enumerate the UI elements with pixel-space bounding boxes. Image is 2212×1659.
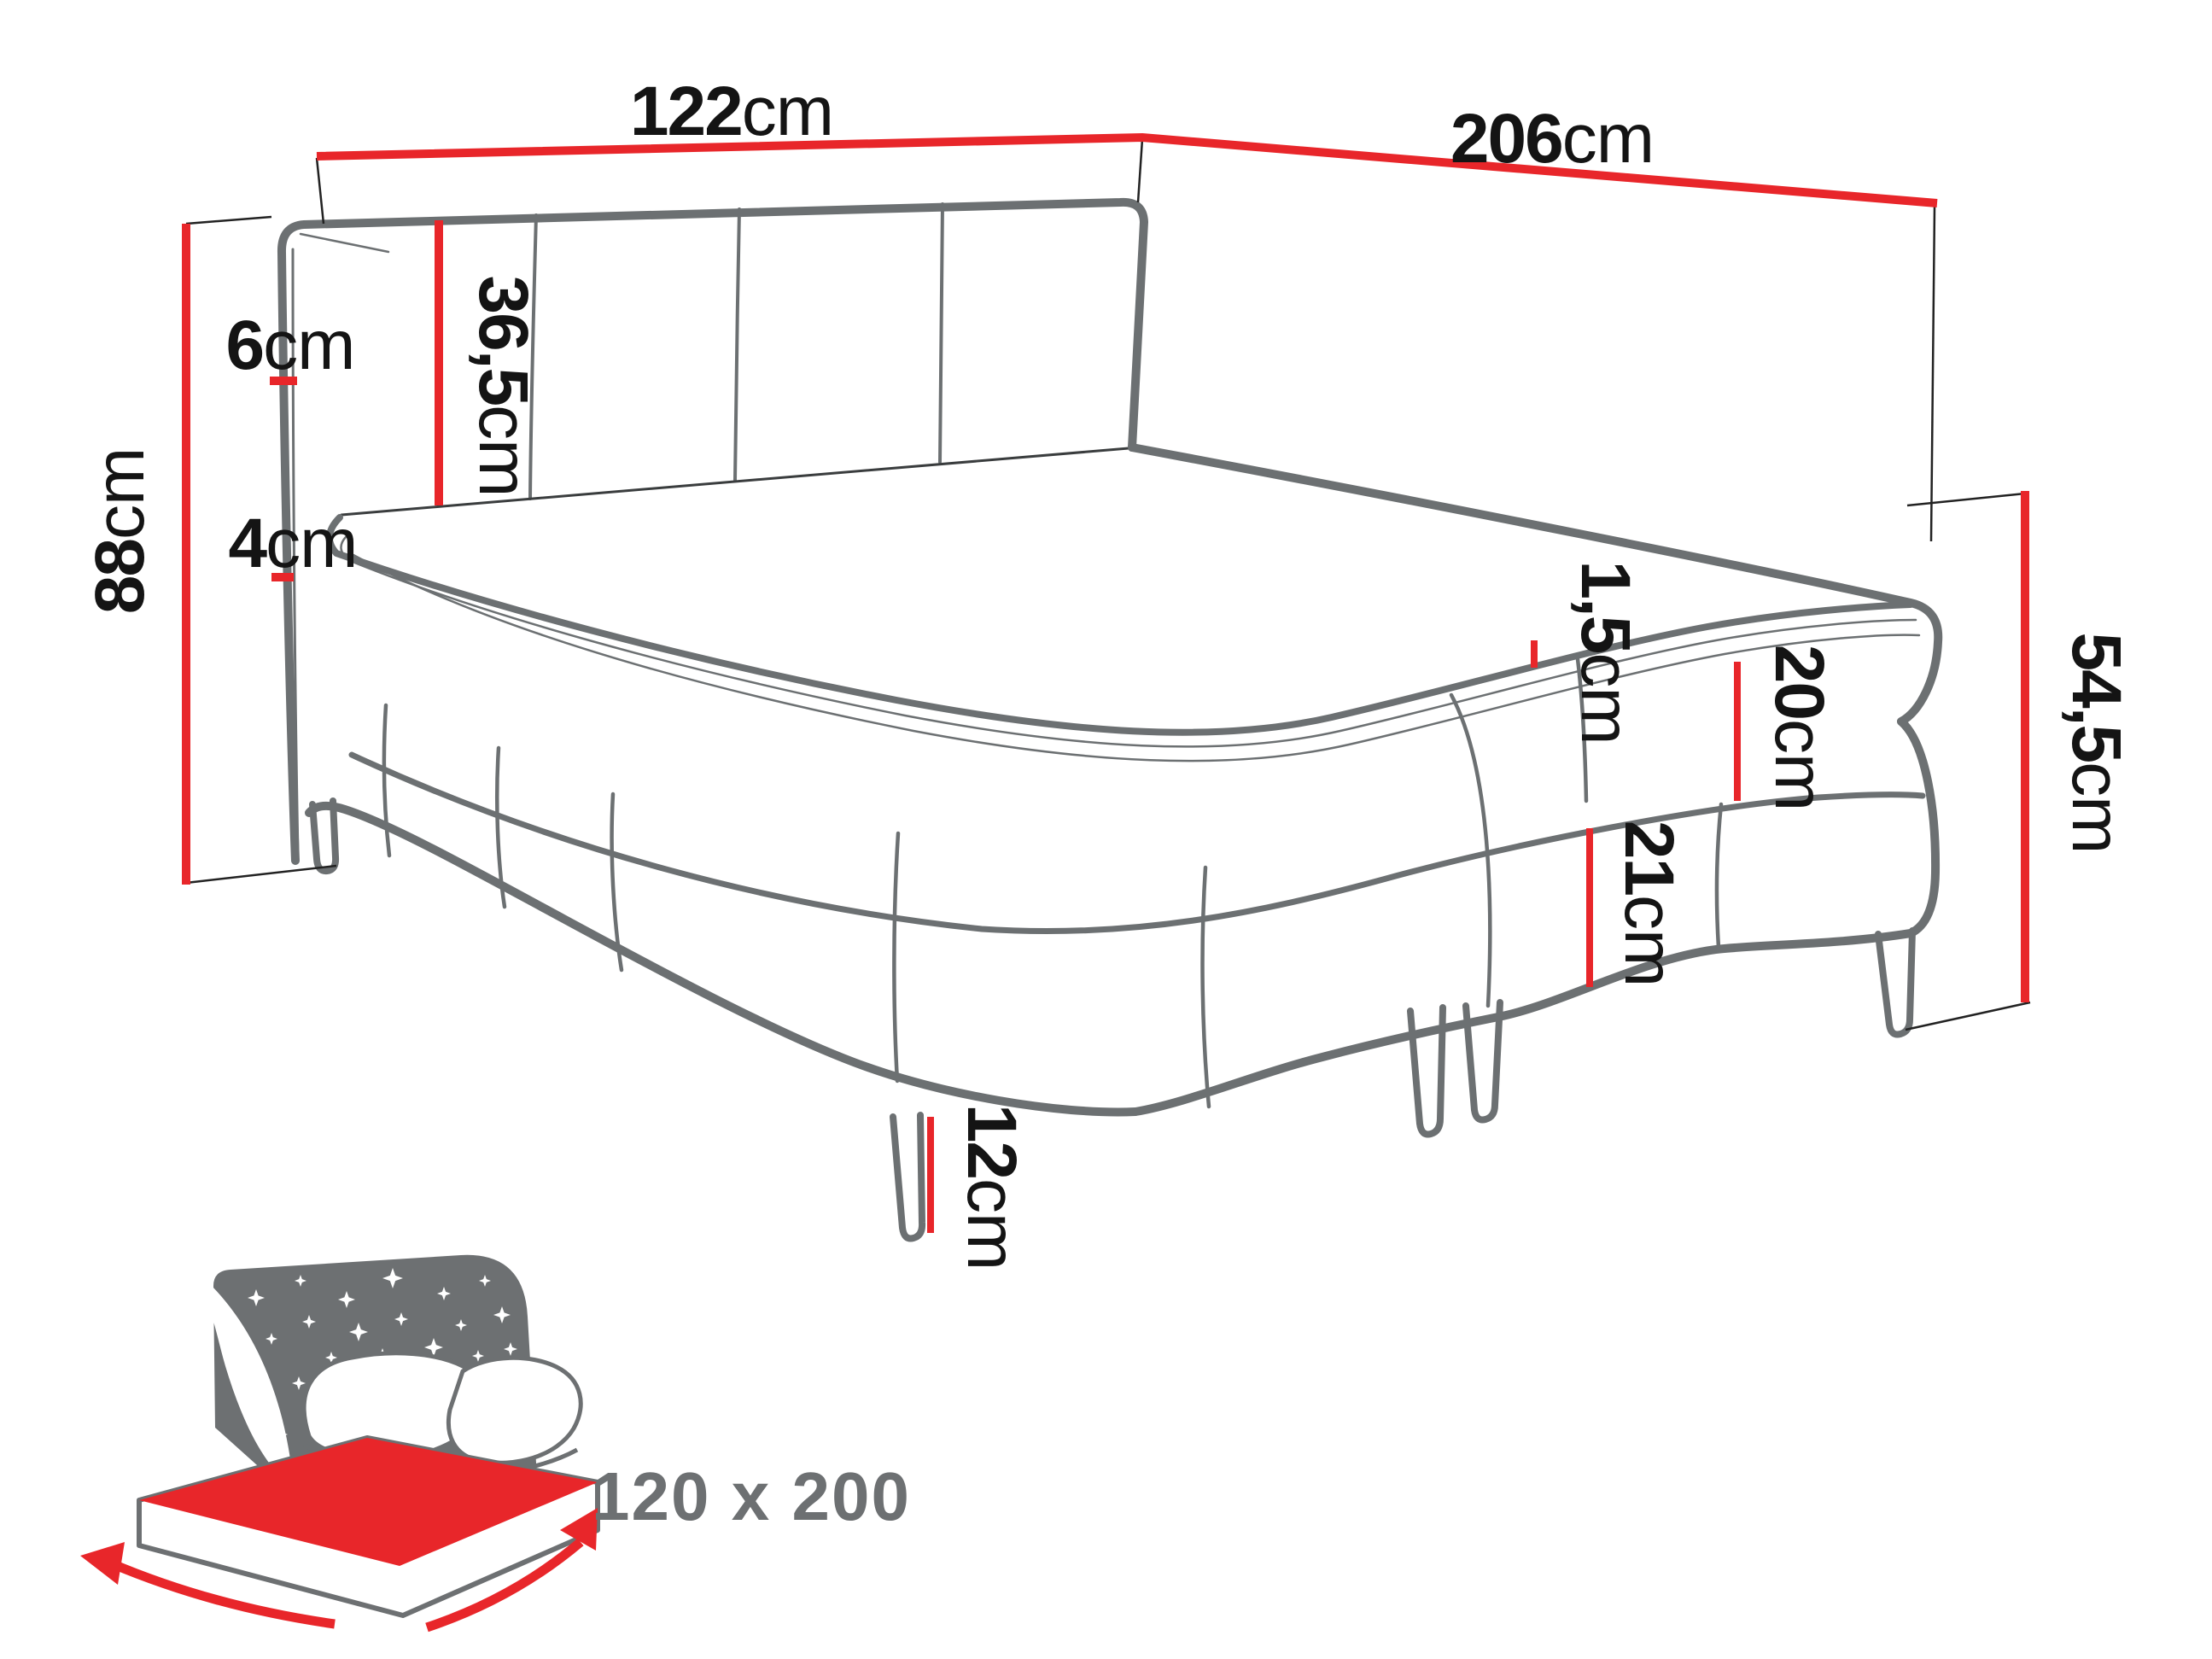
label-leg-height: 12cm: [953, 1104, 1030, 1271]
arrow-length-head: [80, 1542, 125, 1585]
label-total-height: 88cm: [81, 448, 159, 615]
label-headboard-panel-height: 36,5cm: [464, 276, 542, 497]
size-badge: 120 x 200: [80, 1255, 911, 1627]
ext-206-right: [1931, 207, 1935, 541]
dim-line-headboard-width-and-length: [317, 137, 1937, 203]
label-side-height: 54,5cm: [2057, 633, 2135, 854]
bed-diagram-svg: 122cm 206cm 88cm 6cm 36,5cm 4cm 1,5cm 20…: [0, 0, 2212, 1659]
ext-88-bottom: [186, 866, 336, 883]
headboard-corner-line: [301, 234, 388, 252]
ext-545-top: [1907, 494, 2025, 505]
size-badge-label: 120 x 200: [592, 1458, 911, 1534]
ext-545-bottom: [1906, 1002, 2030, 1030]
label-base-height: 21cm: [1610, 821, 1688, 987]
headboard-seams: [530, 204, 943, 499]
label-mattress-height: 20cm: [1760, 645, 1838, 811]
dimension-lines: [186, 137, 2025, 1233]
label-headboard-thickness: 6cm: [226, 307, 355, 384]
ext-88-top: [186, 217, 271, 224]
bed-bottom-edge: [309, 806, 1135, 1113]
label-total-length: 206cm: [1450, 100, 1654, 178]
label-headboard-width: 122cm: [630, 73, 833, 150]
leg-front: [893, 1115, 922, 1239]
piping-band: [341, 536, 1919, 761]
dimension-diagram-canvas: 122cm 206cm 88cm 6cm 36,5cm 4cm 1,5cm 20…: [0, 0, 2212, 1659]
label-piping-height: 1,5cm: [1567, 560, 1644, 744]
ext-122-right: [1138, 139, 1142, 202]
label-topper-height: 4cm: [229, 505, 358, 582]
ext-122-left: [317, 158, 324, 224]
extension-lines: [186, 139, 2030, 1030]
headboard-outline: [282, 202, 1144, 861]
leg-foot: [1878, 931, 1912, 1035]
